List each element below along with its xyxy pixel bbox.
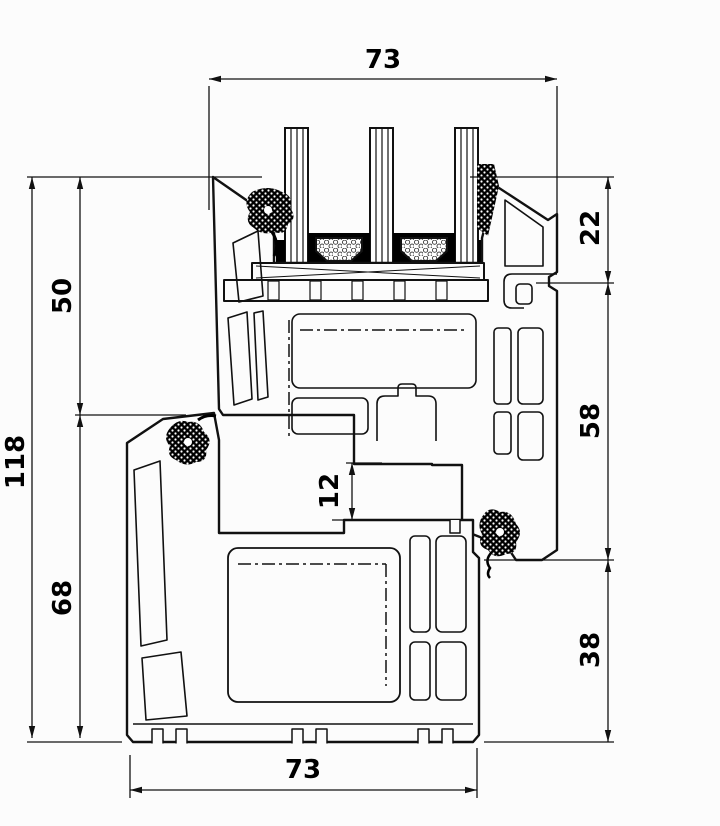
dim-top-width-label: 73 [365,45,401,75]
glazing-unit [276,128,486,263]
spacer-bar [401,238,447,261]
spacer-bar [316,238,362,261]
dim-right-lower-label: 38 [576,632,606,668]
dim-left-upper-label: 50 [48,278,78,314]
dim-middle-step-label: 12 [315,473,345,509]
dim-left-lower-label: 68 [48,580,78,616]
drawing-canvas: 73 118 50 68 22 58 38 12 73 [0,0,720,826]
dim-bottom-width-label: 73 [285,755,321,785]
dim-left-total-label: 118 [1,435,31,489]
dim-right-upper-label: 22 [576,210,606,246]
dim-right-middle-label: 58 [576,403,606,439]
glass-pane-middle [370,128,393,263]
window-profile-section-drawing: 73 118 50 68 22 58 38 12 73 [0,0,720,826]
glass-pane-inner [455,128,478,263]
glass-pane-outer [285,128,308,263]
frame-upstand-notch [450,520,460,533]
